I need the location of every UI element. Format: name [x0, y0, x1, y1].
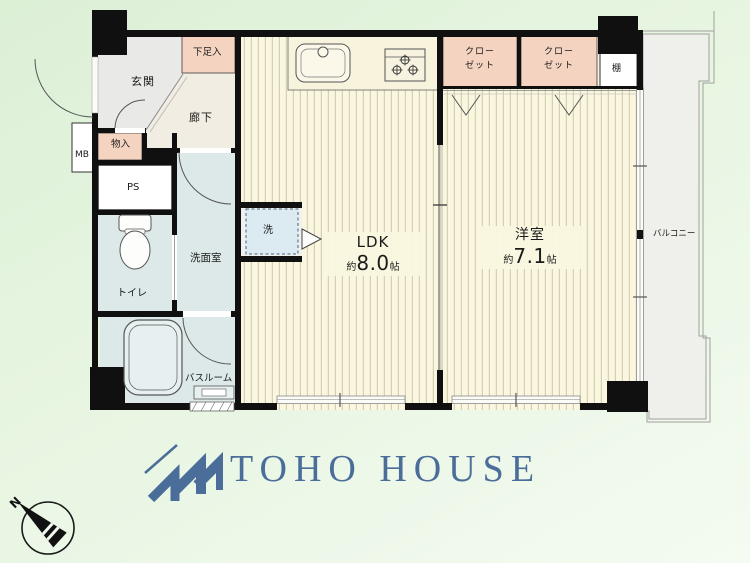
label-meter-box: MB: [75, 150, 89, 161]
compass-icon: N: [8, 492, 92, 563]
toho-house-logo-mark-icon: [143, 437, 223, 509]
washroom-floor: [177, 153, 237, 313]
compass-north-label: N: [8, 494, 24, 511]
ldk-area: 約8.0帖: [324, 251, 422, 275]
label-balcony: バルコニー: [653, 229, 695, 239]
room-label-ldk: LDK 約8.0帖: [322, 232, 424, 276]
label-washroom: 洗面室: [190, 252, 222, 265]
meter-box: [72, 123, 95, 172]
label-shelf: 棚: [612, 64, 621, 75]
label-bathroom: バスルーム: [185, 373, 232, 384]
label-closet-left: クロー ゼット: [443, 46, 517, 74]
label-storage: 物入: [111, 139, 130, 150]
label-pipe-space: PS: [127, 182, 139, 194]
vent-grate: [190, 402, 234, 411]
label-closet-right: クロー ゼット: [521, 46, 597, 74]
stove-icon: [385, 49, 425, 81]
label-genkan: 玄関: [131, 75, 155, 88]
label-shoe-box: 下足入: [193, 47, 222, 58]
floorplan-page: 玄関 下足入 廊下 物入 MB PS トイレ 洗面室 バスルーム 洗 棚 バルコ…: [0, 0, 750, 563]
label-washer: 洗: [263, 225, 273, 237]
western-room-area: 約7.1帖: [481, 244, 579, 268]
label-hallway: 廊下: [189, 111, 213, 124]
entrance-door-arc: [35, 59, 93, 117]
room-label-western: 洋室 約7.1帖: [479, 226, 581, 269]
brand-name: TOHO HOUSE: [230, 447, 541, 491]
balcony-area: [643, 11, 714, 422]
toilet-icon: [119, 215, 151, 269]
western-room-name: 洋室: [481, 227, 579, 244]
sink-icon: [296, 44, 350, 82]
ldk-name: LDK: [324, 233, 422, 251]
label-toilet: トイレ: [117, 288, 147, 300]
